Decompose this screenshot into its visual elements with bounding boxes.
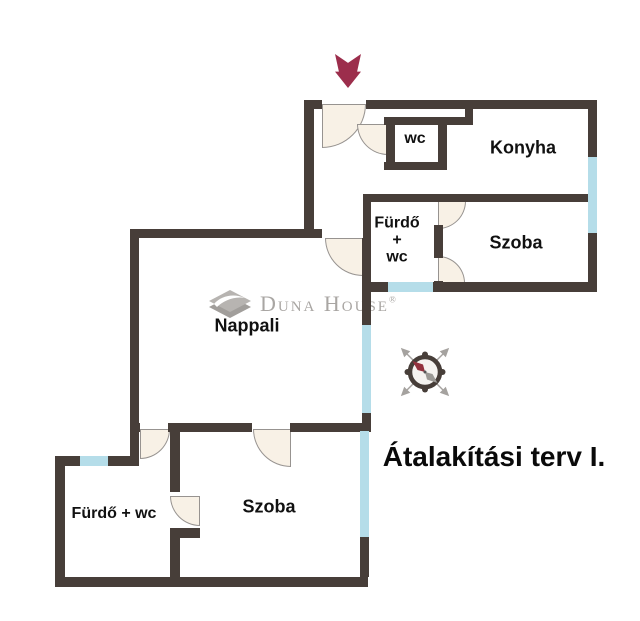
room-label-furdo-lower: Fürdő + wc <box>72 505 157 523</box>
wall-segment <box>55 456 65 587</box>
wall-segment <box>465 104 473 117</box>
entrance-arrow-icon <box>335 54 361 88</box>
door-swing-szoba-upper-2 <box>438 256 465 283</box>
wall-segment <box>170 538 180 577</box>
door-swing-furdo-lower <box>170 496 200 526</box>
wall-segment <box>304 100 314 237</box>
window-segment <box>388 282 433 292</box>
door-swing-furdo-lower-hall <box>140 429 170 459</box>
wall-segment <box>55 577 368 587</box>
window-segment <box>80 456 108 466</box>
door-swing-szoba-lower <box>253 429 291 467</box>
window-segment <box>588 157 597 233</box>
floor-plan: Duna House® wc Konyha Fürdő + <box>0 0 640 621</box>
wall-segment <box>366 100 597 109</box>
room-label-szoba-lower: Szoba <box>242 497 295 518</box>
wall-segment <box>360 537 369 577</box>
wall-segment <box>108 456 139 466</box>
wall-segment <box>384 117 473 125</box>
wall-segment <box>170 528 200 538</box>
wall-segment <box>363 194 588 202</box>
wall-segment <box>362 238 371 325</box>
room-label-furdo-upper: Fürdő + wc <box>374 215 419 266</box>
wall-segment <box>588 109 597 157</box>
room-label-szoba-upper: Szoba <box>489 233 542 254</box>
door-swing-nappali <box>325 238 363 276</box>
plan-title: Átalakítási terv I. <box>383 441 606 473</box>
wall-segment <box>384 162 447 170</box>
wall-segment <box>434 225 443 258</box>
door-swing-wc <box>357 124 388 155</box>
window-segment <box>362 325 371 413</box>
compass-rose-icon <box>398 345 452 399</box>
registered-mark: ® <box>389 295 398 305</box>
wall-segment <box>130 229 322 238</box>
window-segment <box>360 431 369 537</box>
wall-segment <box>168 423 252 432</box>
wall-segment <box>290 423 371 432</box>
room-label-wc: wc <box>404 130 425 148</box>
wall-segment <box>130 423 140 432</box>
wall-segment <box>170 431 180 492</box>
room-label-nappali: Nappali <box>214 316 279 337</box>
watermark-brand-text: Duna House® <box>260 291 398 317</box>
room-label-konyha: Konyha <box>490 138 556 159</box>
wall-segment <box>433 282 597 292</box>
